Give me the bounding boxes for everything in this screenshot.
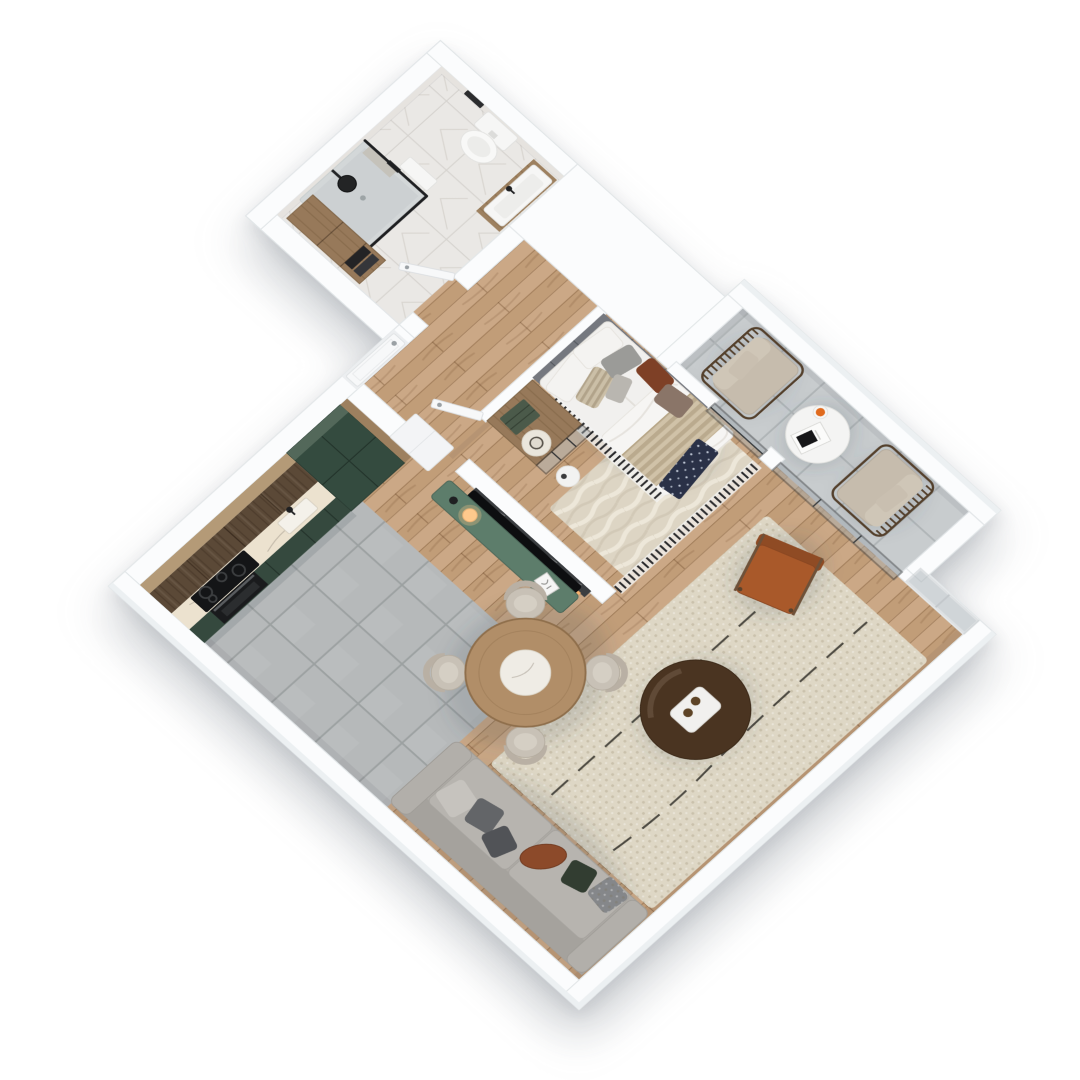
dining-chair-4: [585, 655, 625, 690]
dining-chair-2: [426, 655, 466, 690]
dining-chair-1: [506, 583, 545, 619]
dining-chair-3: [506, 726, 545, 762]
floorplan-stage: [0, 0, 1080, 1080]
floorplan-svg: [0, 0, 1080, 1080]
